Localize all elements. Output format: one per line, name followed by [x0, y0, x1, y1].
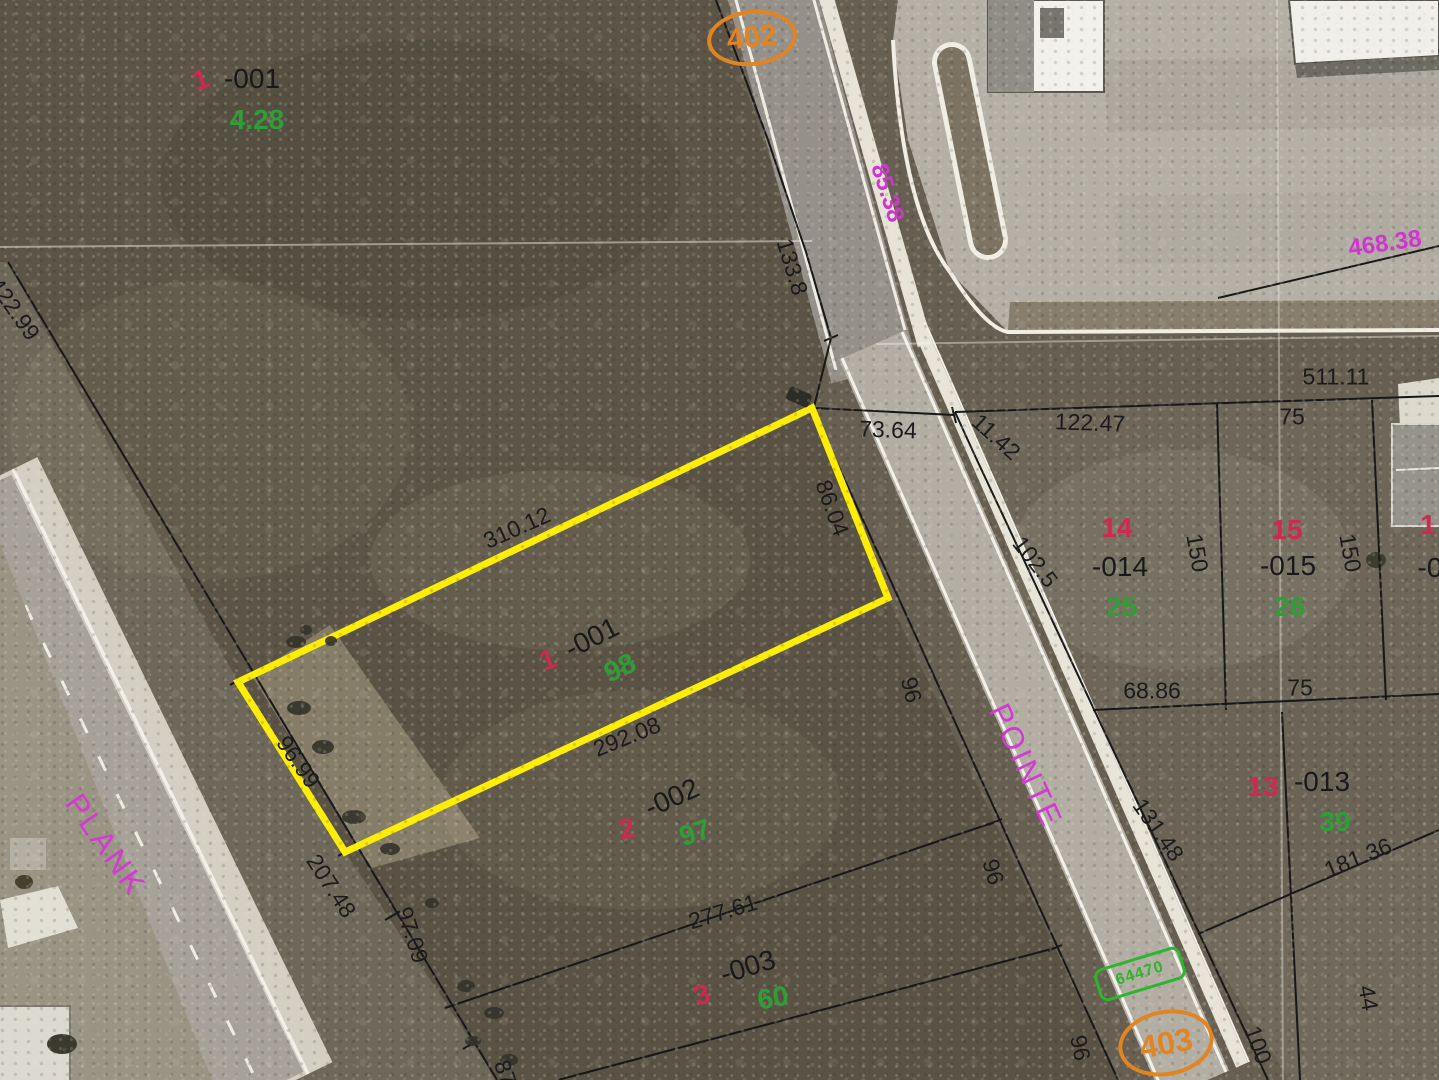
building [1289, 0, 1439, 78]
parcel-area: 60 [755, 982, 791, 1015]
route-marker-403-label: 403 [1136, 1020, 1195, 1066]
dimension-label: 68.86 [1123, 680, 1181, 703]
lot-number: 1 [1420, 511, 1436, 539]
green-road-tag-label: 64470 [1114, 958, 1167, 990]
parcel-suffix: -014 [1092, 553, 1148, 581]
parcel-suffix: -001 [224, 65, 280, 93]
dimension-label: 73.64 [859, 418, 917, 443]
building [988, 0, 1104, 92]
parcel-suffix: -0 [1418, 554, 1439, 582]
dimension-label: 75 [1287, 677, 1313, 700]
route-marker-402-label: 402 [725, 18, 778, 57]
dimension-label: 150 [1335, 532, 1364, 574]
dimension-label: 150 [1182, 532, 1211, 574]
dimension-label: 75 [1279, 406, 1305, 429]
dimension-label: 96 [1066, 1033, 1094, 1063]
map-viewport[interactable]: 422.99 133.8 511.11 73.64 11.42 122.47 7… [0, 0, 1439, 1080]
dimension-label: 511.11 [1303, 366, 1370, 389]
parcel-area: 25 [1106, 593, 1137, 621]
dimension-label: 44 [1354, 983, 1381, 1012]
lot-number: 13 [1247, 773, 1278, 801]
dimension-label: 122.47 [1054, 410, 1125, 435]
lot-number: 14 [1101, 514, 1132, 542]
parcel-suffix: -015 [1260, 552, 1316, 580]
dimension-label: 96 [897, 675, 926, 705]
parcel-area: 4.28 [230, 106, 285, 134]
parcel-area: 39 [1319, 808, 1350, 836]
parcel-area: 26 [1274, 593, 1305, 621]
parcel-suffix: -013 [1294, 768, 1350, 796]
lot-number: 15 [1271, 516, 1302, 544]
